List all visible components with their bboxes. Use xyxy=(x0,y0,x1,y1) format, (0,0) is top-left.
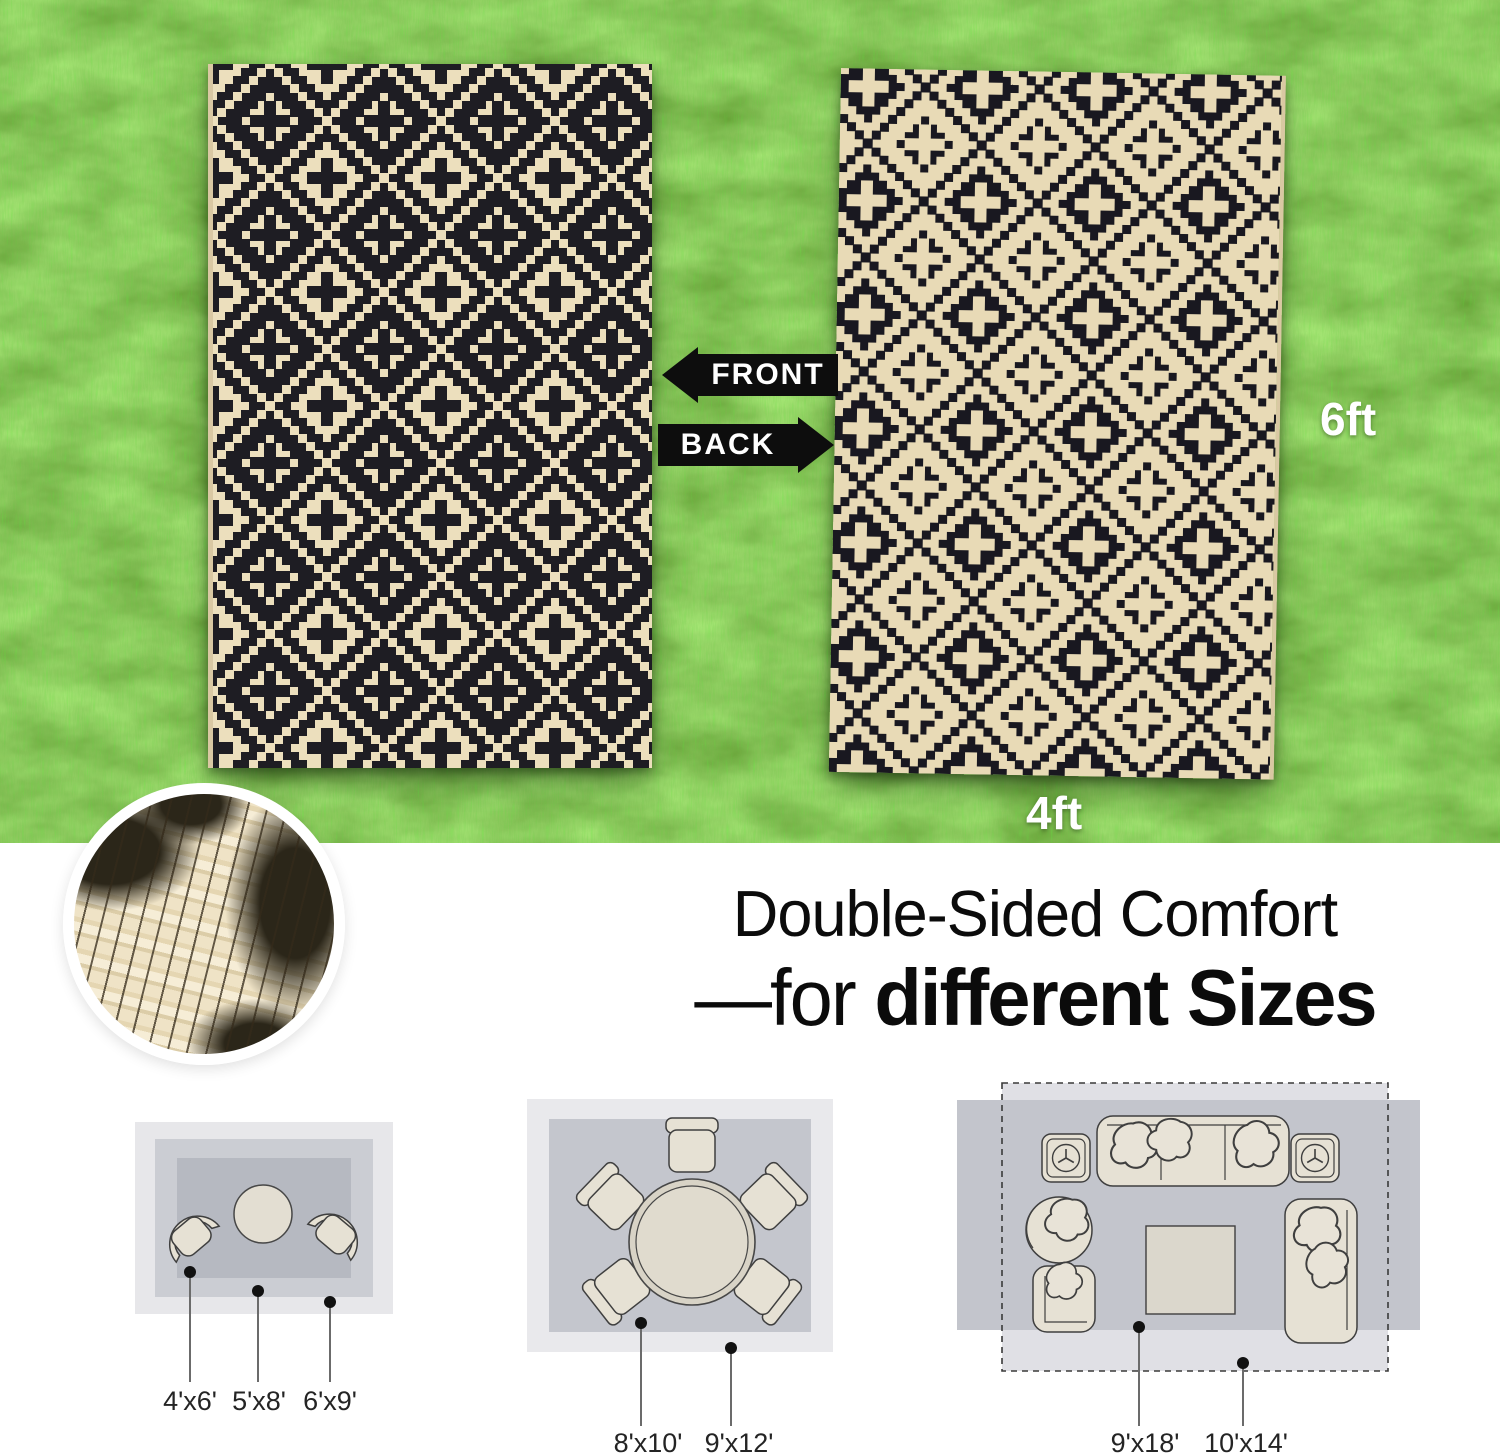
rug-width-label: 4ft xyxy=(1026,786,1082,840)
product-infographic: FRONT BACK 6ft 4ft Double-Sided Comfort … xyxy=(0,0,1500,1454)
speaker-table-left xyxy=(1042,1134,1090,1182)
headline-line2-prefix: —for xyxy=(694,953,874,1042)
leader-10x14 xyxy=(1242,1363,1244,1426)
size-label-6x9: 6'x9' xyxy=(303,1386,357,1417)
rug-height-label: 6ft xyxy=(1320,392,1376,446)
size-label-9x12: 9'x12' xyxy=(705,1428,774,1454)
floorplan-large-rugs xyxy=(955,1078,1422,1374)
coffee-table xyxy=(1146,1226,1235,1314)
headline-line2-emphasis: different Sizes xyxy=(874,953,1375,1042)
leader-4x6 xyxy=(189,1272,191,1382)
weave-texture-closeup xyxy=(63,783,345,1065)
floorplan-small-rugs xyxy=(135,1122,393,1314)
leader-9x12 xyxy=(730,1348,732,1426)
arrow-right-icon xyxy=(798,417,834,473)
leader-6x9 xyxy=(329,1302,331,1382)
size-label-5x8: 5'x8' xyxy=(232,1386,286,1417)
front-label: FRONT xyxy=(698,354,838,396)
leader-9x18 xyxy=(1138,1327,1140,1426)
size-label-8x10: 8'x10' xyxy=(614,1428,683,1454)
front-side-arrow: FRONT xyxy=(662,347,838,403)
headline-line1: Double-Sided Comfort xyxy=(628,880,1443,948)
back-label: BACK xyxy=(658,424,798,466)
back-side-arrow: BACK xyxy=(658,417,834,473)
leader-5x8 xyxy=(257,1291,259,1382)
leader-8x10 xyxy=(640,1323,642,1426)
headline-line2: —for different Sizes xyxy=(628,956,1443,1040)
size-label-4x6: 4'x6' xyxy=(163,1386,217,1417)
speaker-table-right xyxy=(1291,1134,1339,1182)
dining-chair-top xyxy=(666,1118,718,1172)
side-table xyxy=(234,1185,292,1243)
rug-back-photo xyxy=(829,68,1286,780)
size-label-9x18: 9'x18' xyxy=(1111,1428,1180,1454)
floorplan-medium-rugs xyxy=(527,1099,833,1352)
size-label-10x14: 10'x14' xyxy=(1204,1428,1288,1454)
rug-front-photo xyxy=(208,64,652,768)
arrow-left-icon xyxy=(662,347,698,403)
headline: Double-Sided Comfort —for different Size… xyxy=(628,880,1443,1040)
